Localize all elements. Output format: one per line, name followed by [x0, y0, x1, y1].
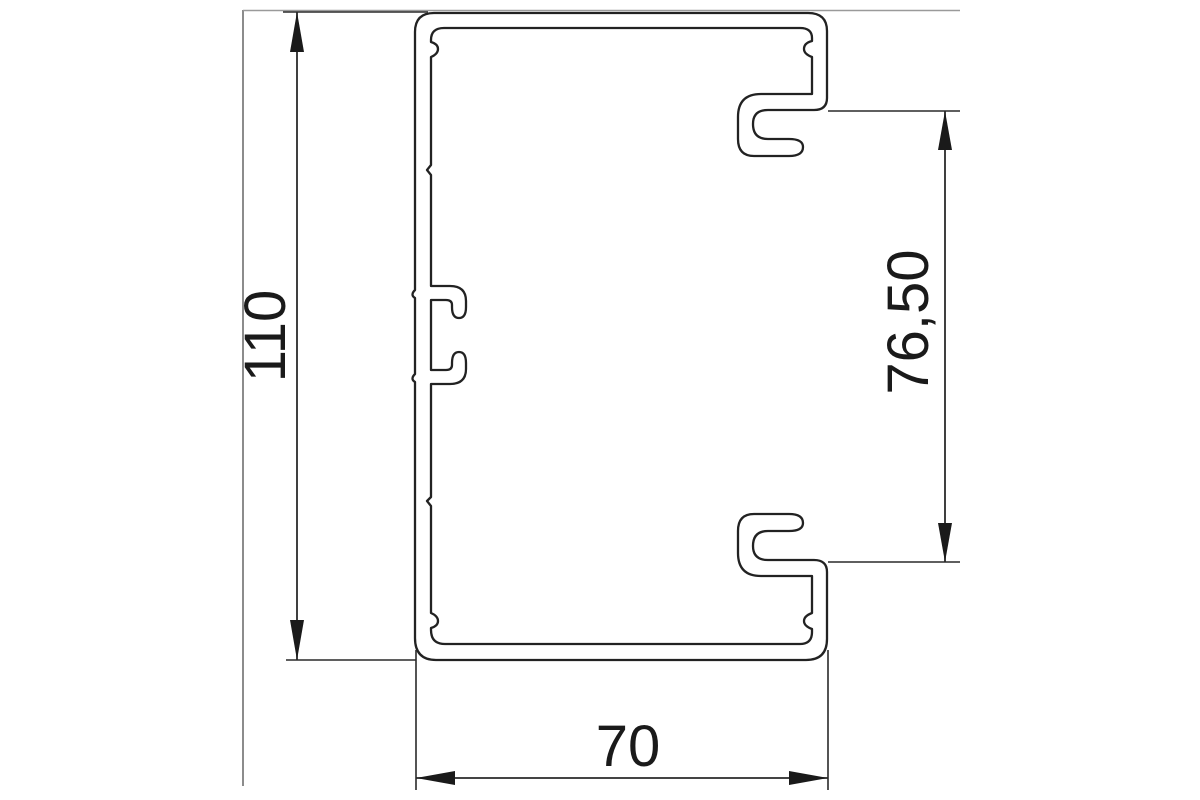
- drawing-canvas: 110 76,50 70: [0, 0, 1200, 800]
- profile-outline: [413, 13, 828, 660]
- dimension-label-width: 70: [478, 718, 778, 776]
- dimension-label-opening: 76,50: [880, 172, 938, 472]
- dimension-height-110: [283, 12, 428, 660]
- arrowhead-up-icon: [290, 12, 304, 52]
- arrowhead-left-icon: [416, 771, 455, 785]
- arrowhead-down-icon: [938, 523, 952, 562]
- arrowhead-down-icon: [290, 620, 304, 660]
- arrowhead-up-icon: [938, 111, 952, 150]
- cross-section-drawing-svg: [0, 0, 1200, 800]
- dimension-label-height: 110: [237, 186, 295, 486]
- arrowhead-right-icon: [789, 771, 828, 785]
- frame-lines: [243, 10, 960, 786]
